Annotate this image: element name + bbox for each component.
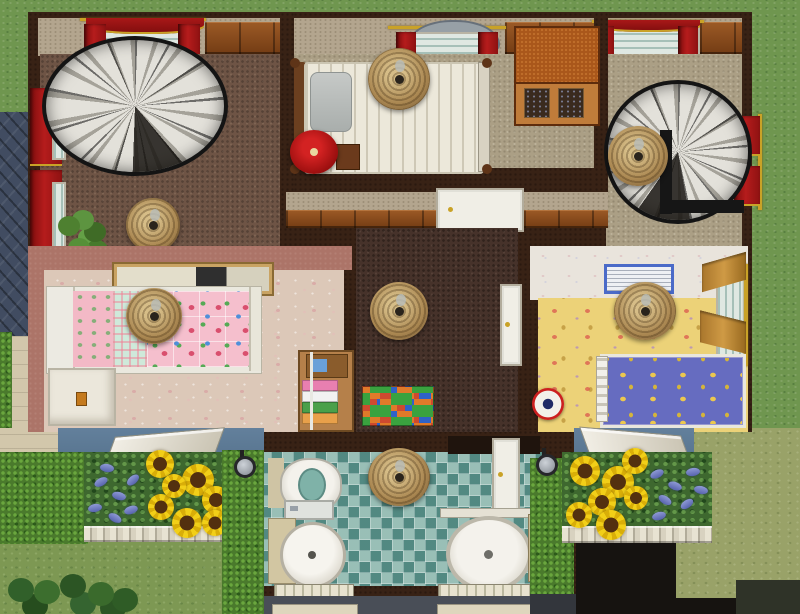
lawn-left bbox=[0, 536, 232, 614]
sunflower[interactable] bbox=[148, 494, 174, 520]
spiral-staircase[interactable] bbox=[42, 36, 228, 176]
stair-opening bbox=[46, 40, 224, 172]
stair-rail-bar bbox=[660, 200, 744, 213]
cabinet-top[interactable] bbox=[514, 26, 600, 88]
roly-poly-toy[interactable] bbox=[532, 388, 564, 420]
bed-footboard bbox=[478, 62, 490, 172]
outdoor-wall-lamp[interactable] bbox=[536, 454, 558, 476]
wicker-lamp[interactable] bbox=[368, 48, 430, 110]
porch-step bbox=[272, 604, 358, 614]
corner-shower[interactable] bbox=[446, 516, 532, 592]
sunflower[interactable] bbox=[566, 502, 592, 528]
sunflower[interactable] bbox=[172, 508, 202, 538]
wicker-lamp[interactable] bbox=[126, 198, 180, 252]
garden-hedge bbox=[0, 452, 88, 544]
garden-shrubs[interactable] bbox=[8, 578, 34, 602]
bed-post bbox=[482, 58, 492, 68]
sunflower[interactable] bbox=[596, 510, 626, 540]
ground-shadow bbox=[530, 594, 576, 614]
ground-shadow-right bbox=[736, 580, 800, 614]
toilet-bowl-water bbox=[298, 468, 326, 502]
kids-bed[interactable] bbox=[600, 354, 746, 428]
toy-row bbox=[302, 380, 338, 391]
sunflower[interactable] bbox=[570, 456, 600, 486]
pedestal-sink[interactable] bbox=[280, 522, 346, 588]
bed-pillow bbox=[310, 72, 352, 132]
shelf-pole bbox=[310, 352, 313, 430]
wicker-lamp[interactable] bbox=[614, 282, 676, 340]
flush-handle bbox=[290, 506, 298, 511]
outdoor-wall-lamp[interactable] bbox=[234, 456, 256, 478]
sunflower[interactable] bbox=[162, 474, 186, 498]
door-knob bbox=[498, 472, 503, 477]
nursery-blanket-head bbox=[73, 291, 113, 367]
sink-drain bbox=[308, 551, 316, 559]
plant-foliage bbox=[58, 216, 80, 236]
sunflower[interactable] bbox=[622, 448, 648, 474]
toy-shelf[interactable] bbox=[298, 350, 354, 432]
nursery-headboard bbox=[47, 287, 75, 371]
wood-paneling bbox=[700, 22, 742, 54]
white-dresser[interactable] bbox=[48, 368, 116, 426]
wicker-lamp[interactable] bbox=[608, 126, 668, 186]
hedge-sliver bbox=[0, 332, 12, 428]
picket-fence bbox=[562, 526, 712, 543]
nursery-footboard bbox=[249, 287, 261, 371]
bed-post bbox=[290, 58, 300, 68]
cabinet-display bbox=[524, 88, 550, 118]
sunflower[interactable] bbox=[624, 486, 648, 510]
wicker-lamp[interactable] bbox=[126, 288, 182, 344]
red-pouf[interactable] bbox=[290, 130, 338, 174]
toy-row bbox=[302, 391, 338, 402]
door-knob bbox=[448, 207, 453, 212]
hall-door[interactable] bbox=[436, 188, 524, 232]
door-knob bbox=[505, 322, 510, 327]
wicker-lamp[interactable] bbox=[370, 282, 428, 340]
cabinet-display bbox=[558, 88, 584, 118]
toy-on-dresser bbox=[76, 392, 87, 406]
kids-bed-rail bbox=[596, 356, 608, 422]
nursery-left-wall bbox=[28, 246, 44, 432]
shelf-picture bbox=[311, 359, 327, 372]
play-rug[interactable] bbox=[362, 386, 434, 426]
wood-paneling bbox=[205, 22, 283, 54]
grass-right bbox=[750, 0, 800, 432]
hallway-side-door[interactable] bbox=[500, 284, 522, 366]
porch-step bbox=[437, 604, 535, 614]
cabinet-base[interactable] bbox=[514, 82, 600, 126]
bed-post bbox=[482, 164, 492, 174]
bathroom-door[interactable] bbox=[492, 438, 520, 512]
nightstand[interactable] bbox=[336, 144, 360, 170]
toy-row bbox=[302, 413, 338, 424]
toy-row bbox=[302, 402, 338, 413]
shower-drain bbox=[484, 550, 493, 559]
toilet-tank bbox=[284, 500, 334, 520]
wicker-lamp[interactable] bbox=[368, 448, 430, 506]
game-viewport bbox=[0, 0, 800, 614]
